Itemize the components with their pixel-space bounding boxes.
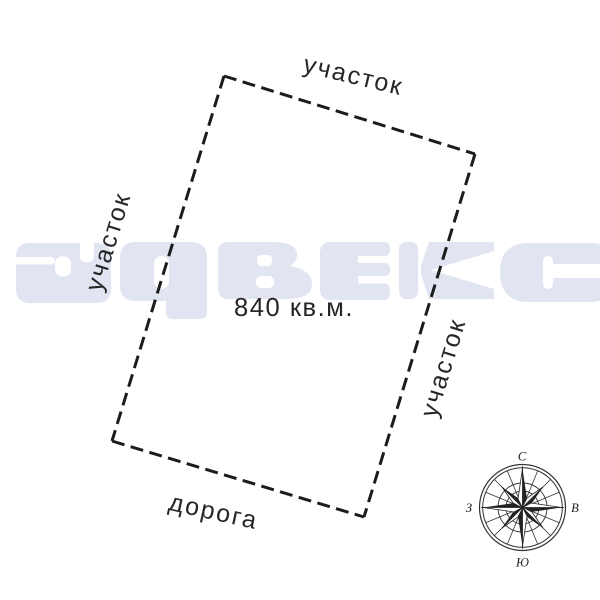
svg-text:840 кв.м.: 840 кв.м. bbox=[234, 294, 354, 322]
svg-text:Ю: Ю bbox=[515, 556, 529, 570]
svg-text:участок: участок bbox=[415, 315, 472, 421]
svg-text:дорога: дорога bbox=[166, 488, 261, 535]
svg-text:В: В bbox=[571, 501, 579, 515]
svg-text:участок: участок bbox=[301, 50, 407, 101]
svg-text:З: З bbox=[466, 501, 472, 515]
svg-text:С: С bbox=[518, 450, 527, 464]
